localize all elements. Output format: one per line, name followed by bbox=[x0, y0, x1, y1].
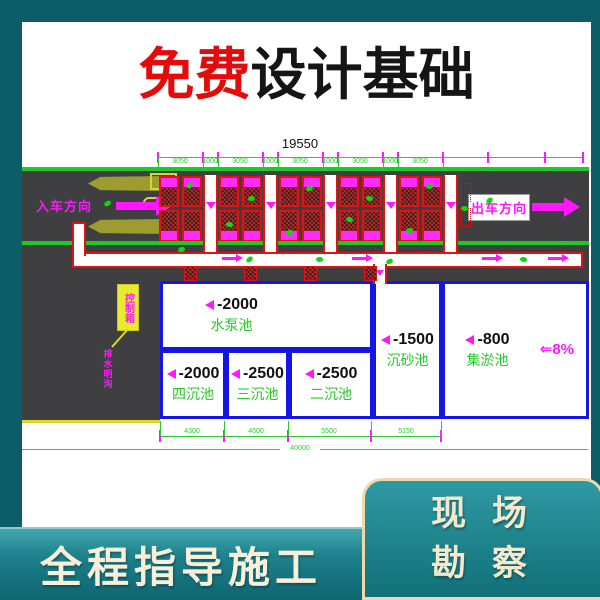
dim-extension-line bbox=[441, 421, 442, 436]
wash-bay-pad bbox=[341, 178, 357, 187]
pavement-edge-line bbox=[22, 420, 160, 423]
control-box-label: 控制箱 bbox=[117, 284, 139, 331]
dim-label: 3050 bbox=[165, 158, 195, 166]
dim-tick bbox=[582, 152, 584, 163]
wash-bay-pad bbox=[221, 178, 237, 187]
wash-bay-pad bbox=[424, 231, 440, 240]
flow-arrow-down bbox=[446, 202, 456, 209]
exit-arrow-head bbox=[564, 197, 580, 217]
level-marker-icon bbox=[231, 369, 240, 379]
level-marker-icon bbox=[465, 335, 474, 345]
pool-name: 二沉池 bbox=[305, 384, 358, 404]
wash-bay-pad bbox=[401, 178, 417, 187]
dim-label: 3050 bbox=[225, 158, 255, 166]
title-rest: 设计基础 bbox=[251, 43, 475, 106]
flow-arrow-down bbox=[206, 202, 216, 209]
wash-bay-pad bbox=[161, 178, 177, 187]
flow-arrow-shaft bbox=[482, 257, 496, 260]
flow-arrow-shaft bbox=[222, 257, 236, 260]
pool-name: 水泵池 bbox=[205, 315, 258, 335]
dim-label: 4300 bbox=[177, 428, 207, 436]
road-edge-line-top bbox=[22, 167, 589, 171]
drop-stub bbox=[364, 266, 377, 281]
flow-arrow-down bbox=[376, 270, 384, 276]
title-highlight: 免费 bbox=[139, 43, 251, 106]
pool-pump: -2000 水泵池 bbox=[160, 281, 373, 350]
dim-extension-line bbox=[443, 157, 444, 171]
pool-name: 沉砂池 bbox=[381, 350, 434, 370]
level-marker-icon bbox=[205, 300, 214, 310]
pool-depth: -2500 bbox=[317, 365, 358, 383]
pool-depth: -2500 bbox=[243, 365, 284, 383]
dim-line-bottom bbox=[160, 436, 441, 437]
flow-arrow-head bbox=[236, 254, 243, 262]
flow-arrow-head bbox=[366, 254, 373, 262]
drain-channel bbox=[323, 175, 338, 256]
dim-extension-line bbox=[288, 421, 289, 436]
dim-tick bbox=[544, 152, 546, 163]
dim-label: 4600 bbox=[241, 428, 271, 436]
banner-text: 全程指导施工 bbox=[0, 534, 362, 595]
dim-label: 3050 bbox=[285, 158, 315, 166]
flow-arrow-head bbox=[562, 254, 569, 262]
pool-fourth: -2000 四沉池 bbox=[160, 350, 226, 419]
dim-label: 1000 bbox=[375, 158, 405, 166]
drain-label: 排水明沟 bbox=[101, 342, 115, 396]
dim-extension-line bbox=[158, 157, 159, 171]
pool-silt: -800 集淤池 ⇐8% bbox=[442, 281, 589, 419]
dim-label: 3050 bbox=[405, 158, 435, 166]
dim-extension-line bbox=[224, 421, 225, 436]
badge-line-2: 勘 察 bbox=[431, 539, 535, 589]
pool-sand: -1500 沉砂池 bbox=[373, 281, 442, 419]
dim-total-bottom: 40000 bbox=[280, 445, 320, 453]
drain-channel bbox=[203, 175, 218, 256]
road-edge-line-bottom bbox=[22, 241, 589, 245]
entry-arrow bbox=[116, 202, 156, 210]
drop-stub bbox=[304, 266, 317, 281]
wash-bay-pad bbox=[244, 178, 260, 187]
flow-arrow-shaft bbox=[352, 257, 366, 260]
drop-stub bbox=[244, 266, 257, 281]
wash-bay-pad bbox=[364, 178, 380, 187]
collector-channel bbox=[72, 252, 583, 268]
drop-stub bbox=[184, 266, 197, 281]
equipment-outline-box bbox=[460, 183, 471, 202]
dim-label: 5500 bbox=[314, 428, 344, 436]
dim-extension-line bbox=[160, 421, 161, 436]
slope-annotation: ⇐8% bbox=[540, 340, 574, 358]
wash-bay-pad bbox=[184, 231, 200, 240]
page-title: 免费设计基础 bbox=[22, 44, 591, 106]
dim-label: 3050 bbox=[345, 158, 375, 166]
wash-bay-pad bbox=[221, 231, 237, 240]
exit-direction-label: 出车方向 bbox=[471, 198, 527, 217]
dim-extension-line bbox=[371, 421, 372, 436]
pavement-area bbox=[22, 281, 160, 421]
pool-name: 集淤池 bbox=[465, 350, 509, 370]
drain-channel bbox=[263, 175, 278, 256]
pool-depth: -1500 bbox=[393, 331, 434, 349]
corner-badge: 现 场 勘 察 bbox=[362, 478, 600, 600]
slope-arrow-icon: ⇐ bbox=[540, 341, 553, 358]
dim-tick bbox=[487, 152, 489, 163]
dim-label: 1000 bbox=[255, 158, 285, 166]
pool-depth: -800 bbox=[477, 331, 509, 349]
flow-arrow-down bbox=[386, 202, 396, 209]
dim-total-top: 19550 bbox=[270, 136, 330, 151]
slope-value: 8% bbox=[552, 341, 574, 358]
wash-bay-pad bbox=[244, 231, 260, 240]
wash-bay-pad bbox=[341, 231, 357, 240]
collector-arm bbox=[72, 222, 86, 256]
pool-third: -2500 三沉池 bbox=[226, 350, 289, 419]
flow-arrow-head bbox=[496, 254, 503, 262]
wash-bay-pad bbox=[304, 231, 320, 240]
pool-name: 四沉池 bbox=[167, 384, 220, 404]
wash-bay-pad bbox=[364, 231, 380, 240]
flow-arrow-shaft bbox=[548, 257, 562, 260]
flow-arrow-down bbox=[266, 202, 276, 209]
level-marker-icon bbox=[167, 369, 176, 379]
ad-image: 免费设计基础 19550 入车方向 出车方向 -2000 水泵池 -2000 四… bbox=[0, 0, 600, 600]
wash-bay-pad bbox=[161, 231, 177, 240]
dim-label: 1000 bbox=[315, 158, 345, 166]
badge-line-1: 现 场 bbox=[431, 489, 535, 539]
level-marker-icon bbox=[381, 335, 390, 345]
dim-label: 1000 bbox=[195, 158, 225, 166]
pool-name: 三沉池 bbox=[231, 384, 284, 404]
entry-direction-label: 入车方向 bbox=[36, 196, 92, 215]
drain-channel bbox=[443, 175, 458, 256]
drain-channel bbox=[383, 175, 398, 256]
pool-second: -2500 二沉池 bbox=[289, 350, 373, 419]
exit-arrow bbox=[532, 203, 564, 211]
pool-depth: -2000 bbox=[217, 296, 258, 314]
dim-label: 5150 bbox=[391, 428, 421, 436]
flow-arrow-down bbox=[326, 202, 336, 209]
pool-depth: -2000 bbox=[179, 365, 220, 383]
wash-bay-pad bbox=[281, 178, 297, 187]
exit-direction-box: 出车方向 bbox=[468, 194, 530, 221]
level-marker-icon bbox=[305, 369, 314, 379]
